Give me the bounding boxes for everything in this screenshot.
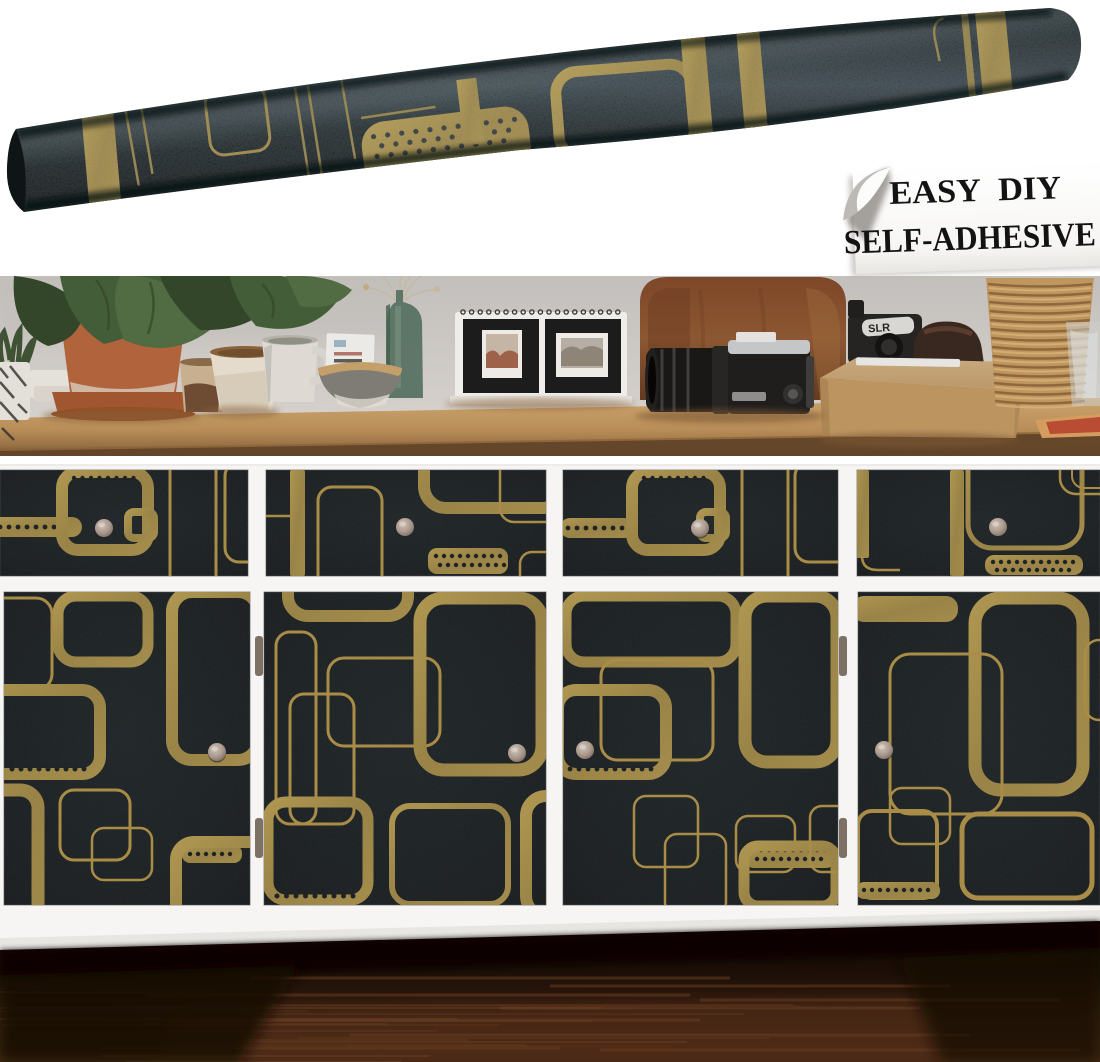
svg-text:EASY DIY: EASY DIY <box>889 170 1062 212</box>
